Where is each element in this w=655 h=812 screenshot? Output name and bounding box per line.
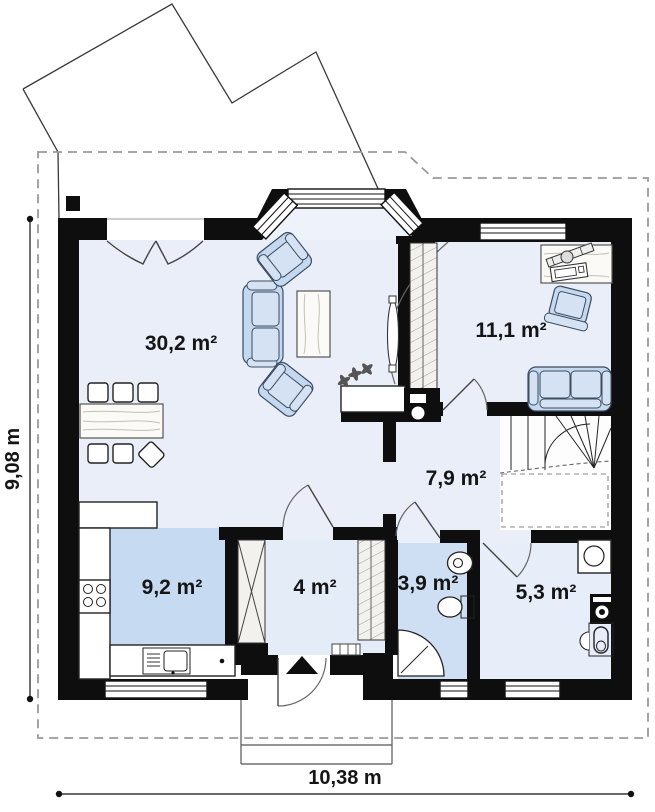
label-dimension-height: 9,08 m (2, 428, 24, 490)
passage-strip (283, 527, 333, 540)
label-kitchen-area: 9,2 m² (142, 576, 203, 599)
dimension-height: 9,08 m (2, 216, 33, 702)
wall-vestibule-top-a (219, 527, 283, 540)
boiler (590, 594, 614, 624)
chair (88, 444, 108, 463)
chimney (66, 196, 80, 211)
chair (88, 383, 108, 402)
label-bedroom-area: 11,1 m² (475, 319, 546, 342)
passage-strip (480, 530, 531, 543)
french-door-opening (107, 218, 204, 240)
porch (241, 700, 392, 764)
tap-dot (220, 659, 225, 664)
roof-outline (23, 4, 390, 219)
bedroom-window (480, 223, 566, 240)
floor-plan: 30,2 m² 11,1 m² 7,9 m² 9,2 m² 4 m² 3,9 m… (0, 0, 655, 812)
sofa (243, 281, 283, 367)
chair (113, 383, 133, 402)
coffee-table (297, 291, 330, 357)
threshold (332, 644, 360, 655)
wall-top-a (58, 218, 107, 240)
chair (138, 383, 158, 402)
label-dimension-width: 10,38 m (308, 767, 381, 789)
counter-top (79, 502, 157, 528)
chair (113, 444, 133, 463)
wall-left (58, 218, 79, 700)
wardrobe-bedroom (410, 243, 437, 403)
washbasin (448, 552, 473, 574)
wardrobe-vestibule-hatch (358, 540, 385, 640)
wall-kitchen-vestibule (225, 540, 238, 643)
wall-entry-right (363, 653, 393, 680)
tv-shelf (341, 386, 405, 412)
bathroom-window (440, 681, 468, 698)
label-bathroom-area: 3,9 m² (398, 572, 459, 595)
wardrobe-vestibule-x (238, 540, 265, 643)
desk (541, 243, 612, 283)
label-utility-area: 5,3 m² (516, 581, 577, 604)
floor-understairs (500, 472, 611, 530)
label-living-area: 30,2 m² (145, 332, 217, 355)
washing-machine (578, 540, 611, 573)
dimension-width: 10,38 m (56, 767, 634, 797)
kitchen-window (105, 681, 207, 698)
label-vestibule-area: 4 m² (293, 576, 336, 599)
stove (79, 580, 110, 613)
wall-entry-a (241, 655, 278, 675)
entrance-arrow (286, 656, 318, 674)
floor-plan-drawing: 30,2 m² 11,1 m² 7,9 m² 9,2 m² 4 m² 3,9 m… (0, 0, 655, 812)
bedroom-sofa (528, 367, 611, 411)
wall-vestibule-bath (385, 540, 398, 655)
wall-right (611, 218, 632, 700)
dining-set (80, 383, 165, 468)
floors (79, 208, 611, 679)
bay-window-top (288, 189, 385, 208)
passage-strip (396, 530, 440, 543)
wall-vestibule-top-b (333, 527, 397, 540)
wall-bedroom-west (398, 242, 410, 408)
wall-stub-a (383, 422, 396, 462)
label-hall-area: 7,9 m² (426, 467, 487, 490)
utility-window (505, 681, 560, 698)
wall-entry-b (330, 655, 363, 675)
